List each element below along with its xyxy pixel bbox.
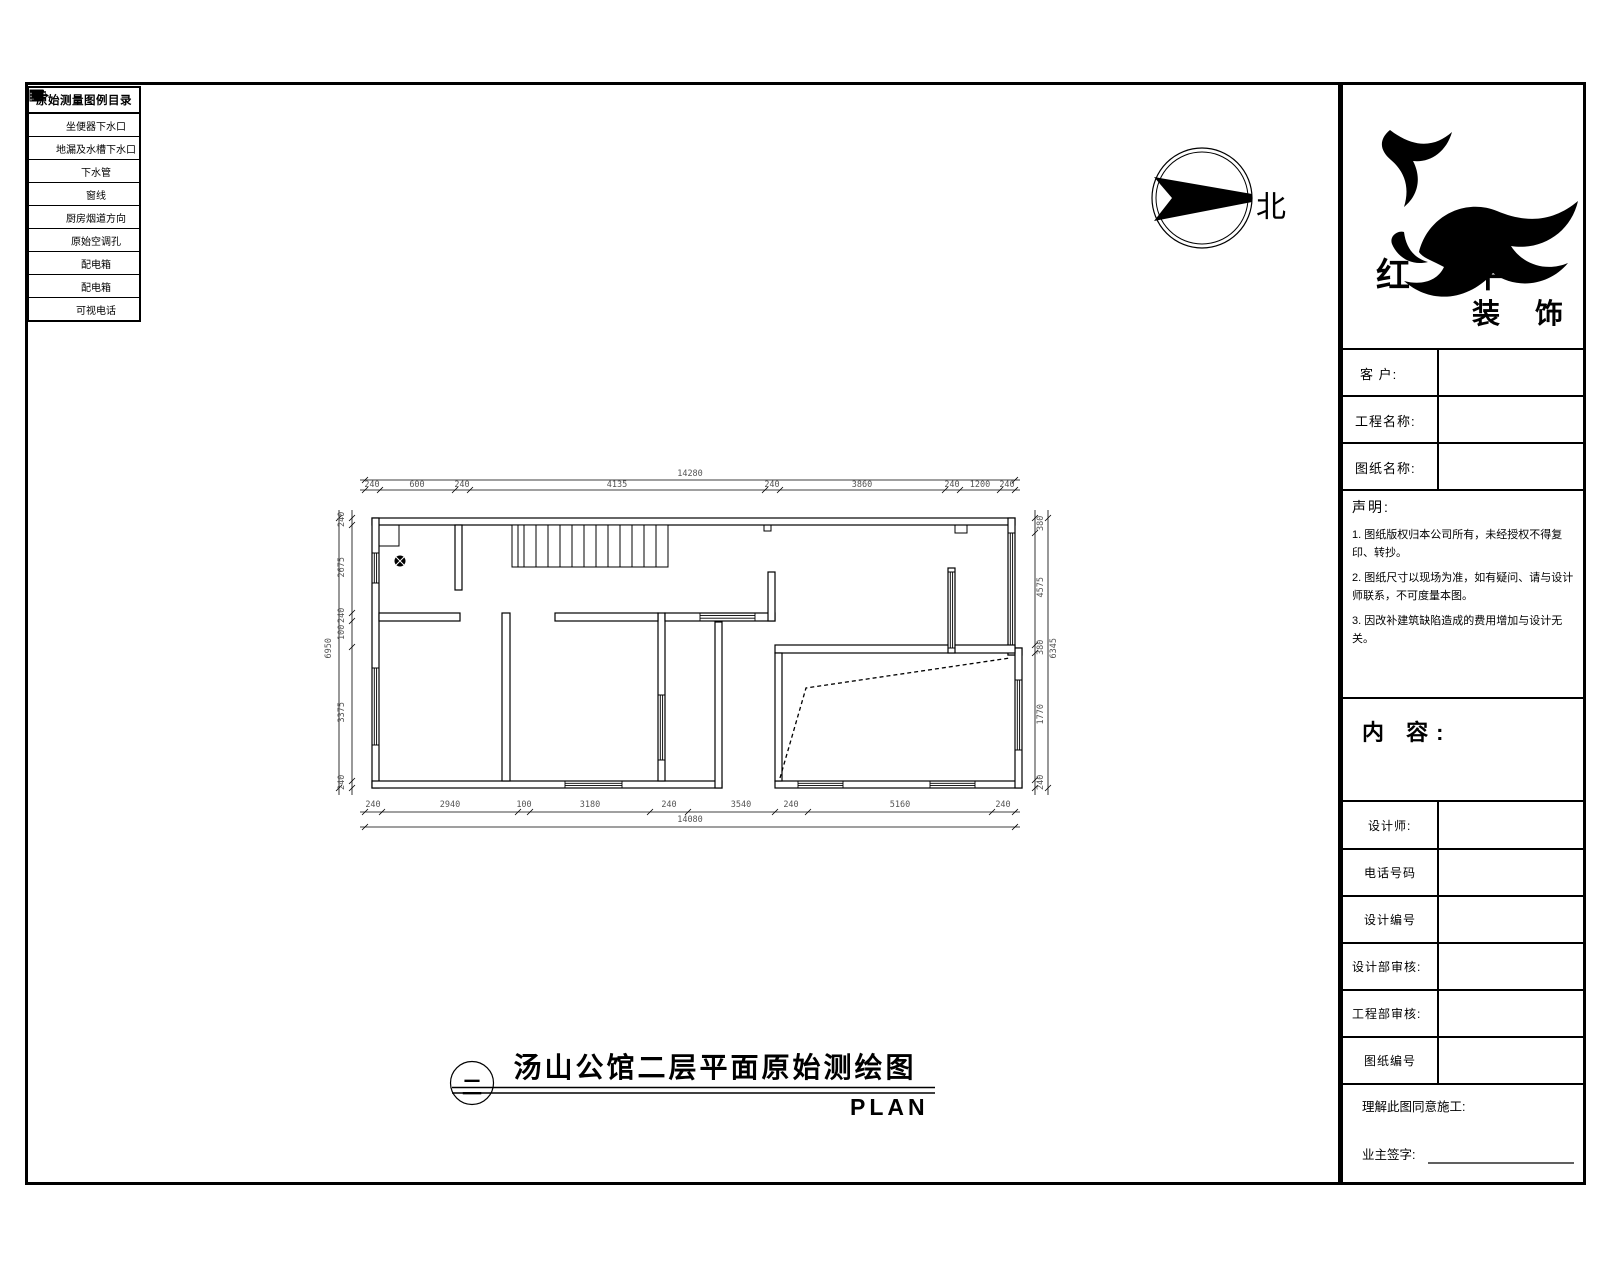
owner-sign-label: 业主签字:	[1362, 1144, 1415, 1163]
titleblock-line	[1437, 800, 1439, 1083]
dim-top: 240	[444, 481, 480, 490]
statement-title: 声明:	[1352, 497, 1576, 517]
statement: 声明: 1. 图纸版权归本公司所有，未经授权不得复印、转抄。 2. 图纸尺寸以现…	[1352, 497, 1576, 657]
drawing-sheet: 原始测量图例目录 坐便器下水口 地漏及水槽下水口 下水管 窗线 厨房烟道方向	[0, 0, 1600, 1280]
dim-left-total: 6950	[325, 630, 334, 666]
legend-label: 地漏及水槽下水口	[53, 141, 139, 156]
dim-left: 3375	[338, 694, 347, 730]
dim-top: 3860	[844, 481, 880, 490]
project-name-label: 工程名称:	[1355, 411, 1416, 430]
legend-label: 配电箱	[53, 256, 139, 271]
toilet-drain-symbol	[395, 556, 406, 567]
statement-item: 2. 图纸尺寸以现场为准，如有疑问、请与设计师联系，不可度量本图。	[1352, 570, 1576, 605]
dim-bottom: 100	[506, 801, 542, 810]
dim-right: 240	[1037, 764, 1046, 800]
titleblock-line	[1437, 348, 1439, 489]
client-label: 客 户:	[1360, 364, 1397, 383]
dim-bottom: 3180	[572, 801, 608, 810]
dim-right-total: 6345	[1050, 630, 1059, 666]
dim-left: 100	[338, 614, 347, 650]
titleblock-line	[1343, 848, 1583, 850]
legend-row: 厨房烟道方向	[29, 206, 139, 229]
dim-top: 600	[399, 481, 435, 490]
legend-row: 下水管	[29, 160, 139, 183]
legend-row: 地漏及水槽下水口	[29, 137, 139, 160]
wall-details	[379, 525, 967, 546]
legend-label: 坐便器下水口	[53, 118, 139, 133]
slope-dashed-line	[780, 658, 1010, 778]
dim-top: 240	[754, 481, 790, 490]
floor-number-mark: 二	[458, 1071, 486, 1100]
dim-right: 380	[1037, 629, 1046, 665]
brand-suffix: 装 饰	[1472, 292, 1577, 332]
dim-top: 4135	[599, 481, 635, 490]
titleblock-line	[1343, 1083, 1583, 1085]
stairs	[512, 525, 668, 567]
design-no-label: 设计编号	[1364, 911, 1416, 928]
legend-row: 窗线	[29, 183, 139, 206]
titleblock-line	[1343, 697, 1583, 699]
titleblock-line	[1343, 1036, 1583, 1038]
dim-left: 2675	[338, 549, 347, 585]
titleblock-line	[1343, 348, 1583, 350]
dim-bottom: 240	[355, 801, 391, 810]
content-label: 内 容:	[1362, 715, 1451, 747]
plan-title: 汤山公馆二层平面原始测绘图	[500, 1046, 930, 1086]
walls	[372, 518, 1022, 788]
approve-label: 理解此图同意施工:	[1362, 1096, 1465, 1115]
plan-subtitle: PLAN	[850, 1094, 929, 1121]
titleblock-line	[1343, 395, 1583, 397]
dim-bottom: 240	[651, 801, 687, 810]
statement-item: 1. 图纸版权归本公司所有，未经授权不得复印、转抄。	[1352, 527, 1576, 562]
design-audit-label: 设计部审核:	[1352, 958, 1421, 975]
window-symbols	[372, 533, 1022, 788]
legend-row: 原始空调孔	[29, 229, 139, 252]
dim-top: 240	[989, 481, 1025, 490]
drawing-no-label: 图纸编号	[1364, 1052, 1416, 1069]
legend-label: 窗线	[53, 187, 139, 202]
titleblock-line	[1343, 489, 1583, 491]
titleblock-line	[1343, 895, 1583, 897]
legend-label: 配电箱	[53, 279, 139, 294]
dim-bottom: 5160	[882, 801, 918, 810]
legend-row: 配电箱	[29, 252, 139, 275]
dim-right: 1770	[1037, 696, 1046, 732]
drawing-name-label: 图纸名称:	[1355, 458, 1416, 477]
dim-bottom: 3540	[723, 801, 759, 810]
dim-bottom: 2940	[432, 801, 468, 810]
dim-bottom: 240	[773, 801, 809, 810]
dim-right: 380	[1037, 505, 1046, 541]
legend-label: 厨房烟道方向	[53, 210, 139, 225]
titleblock-line	[1343, 942, 1583, 944]
legend-row: 坐便器下水口	[29, 114, 139, 137]
phone-label: 电话号码	[1364, 864, 1416, 881]
dim-left: 240	[338, 501, 347, 537]
statement-item: 3. 因改补建筑缺陷造成的费用增加与设计无关。	[1352, 613, 1576, 648]
legend-label: 原始空调孔	[53, 233, 139, 248]
dim-top-total: 14280	[672, 470, 708, 479]
legend: 原始测量图例目录 坐便器下水口 地漏及水槽下水口 下水管 窗线 厨房烟道方向	[27, 86, 141, 322]
titleblock-line	[1343, 442, 1583, 444]
legend-label: 可视电话	[53, 302, 139, 317]
dim-bottom: 240	[985, 801, 1021, 810]
eng-audit-label: 工程部审核:	[1352, 1005, 1421, 1022]
brand-name: 红 牛	[1376, 248, 1531, 297]
dim-left: 240	[338, 764, 347, 800]
north-compass	[1152, 148, 1252, 248]
designer-label: 设计师:	[1368, 817, 1411, 834]
titleblock-line	[1343, 989, 1583, 991]
north-label: 北	[1256, 182, 1286, 226]
legend-label: 下水管	[53, 164, 139, 179]
dim-top: 240	[354, 481, 390, 490]
dim-right: 4575	[1037, 569, 1046, 605]
dim-bottom-total: 14080	[672, 816, 708, 825]
titleblock-line	[1343, 800, 1583, 802]
legend-row: 配电箱	[29, 275, 139, 298]
legend-row: 可视电话	[29, 298, 139, 320]
